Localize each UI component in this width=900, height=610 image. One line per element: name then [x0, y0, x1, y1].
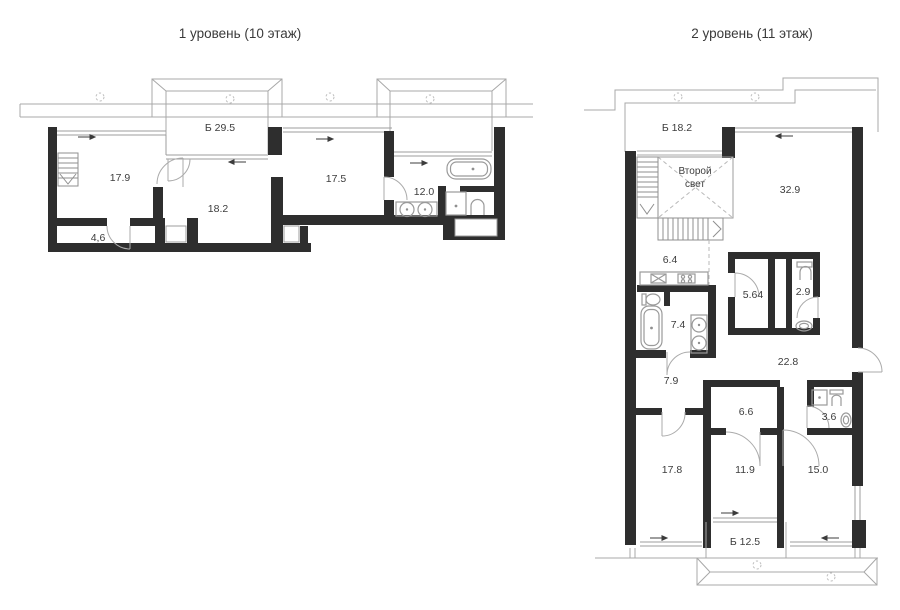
toilet-icon: [642, 294, 660, 305]
room-label-balcony-29-5: Б 29.5: [205, 122, 235, 134]
kitchen-counter: [640, 272, 708, 285]
room-label-17-9: 17.9: [110, 172, 131, 184]
bay-window-icon: [377, 79, 506, 151]
room-label-6-6: 6.6: [739, 406, 754, 418]
room-label-2-9: 2.9: [796, 286, 811, 298]
level2-doors: [662, 273, 829, 466]
staircase-icon: [58, 153, 78, 186]
room-label-7-9: 7.9: [664, 375, 679, 387]
toilet-icon: [830, 390, 843, 406]
ventilation-shaft-icon: [674, 93, 759, 101]
room-label-15-0: 15.0: [808, 464, 829, 476]
void-label-line2: свет: [685, 179, 705, 190]
washing-machine-icon: [812, 390, 827, 405]
room-label-3-6: 3.6: [822, 411, 837, 423]
double-sink-icon: [396, 202, 437, 217]
room-label-5-64: 5.64: [743, 289, 764, 301]
level1-doors: [107, 158, 407, 249]
level2-plan: Второй свет: [584, 78, 882, 585]
ventilation-shaft-icon: [96, 93, 434, 103]
floor-plan-drawing: 1 уровень (10 этаж) 2 уровень (11 этаж): [0, 0, 900, 610]
void-label-line1: Второй: [678, 166, 711, 177]
window-opening-marks: [78, 135, 427, 165]
kitchen-sink-icon: [651, 274, 666, 283]
window-opening-marks: [650, 134, 839, 540]
floor-plan-canvas: 1 уровень (10 этаж) 2 уровень (11 этаж): [0, 0, 900, 610]
bathtub-icon: [447, 159, 491, 179]
room-label-balcony-12-5: Б 12.5: [730, 536, 760, 548]
room-label-7-4: 7.4: [671, 319, 686, 331]
level2-title: 2 уровень (11 этаж): [691, 26, 813, 41]
room-label-6-4: 6.4: [663, 254, 678, 266]
room-label-17-5: 17.5: [326, 173, 347, 185]
room-label-4-6: 4,6: [91, 232, 106, 244]
room-label-balcony-18-2: Б 18.2: [662, 122, 692, 134]
entrance-door: [858, 348, 882, 372]
double-sink-icon: [691, 315, 707, 353]
room-label-32-9: 32.9: [780, 184, 801, 196]
room-label-12-0: 12.0: [414, 186, 435, 198]
bathtub-icon: [641, 306, 662, 349]
bottom-balcony-outline: [595, 522, 878, 585]
level1-exterior-lines: [20, 104, 533, 117]
level2-windows: [640, 128, 860, 546]
wash-basin-icon: [841, 413, 851, 427]
level1-title: 1 уровень (10 этаж): [179, 26, 302, 41]
toilet-icon: [797, 262, 812, 280]
room-label-22-8: 22.8: [778, 356, 799, 368]
shower-icon: [446, 192, 466, 215]
level1-plan: Б 29.5 17.9 18.2 4,6 17.5 12.0: [20, 79, 533, 252]
room-label-11-9: 11.9: [735, 464, 755, 476]
level1-walls: [48, 127, 505, 252]
room-label-18-2: 18.2: [208, 203, 229, 215]
room-label-17-8: 17.8: [662, 464, 683, 476]
second-light-void: Второй свет: [658, 157, 733, 218]
stove-icon: [678, 274, 695, 283]
toilet-icon: [471, 200, 484, 216]
